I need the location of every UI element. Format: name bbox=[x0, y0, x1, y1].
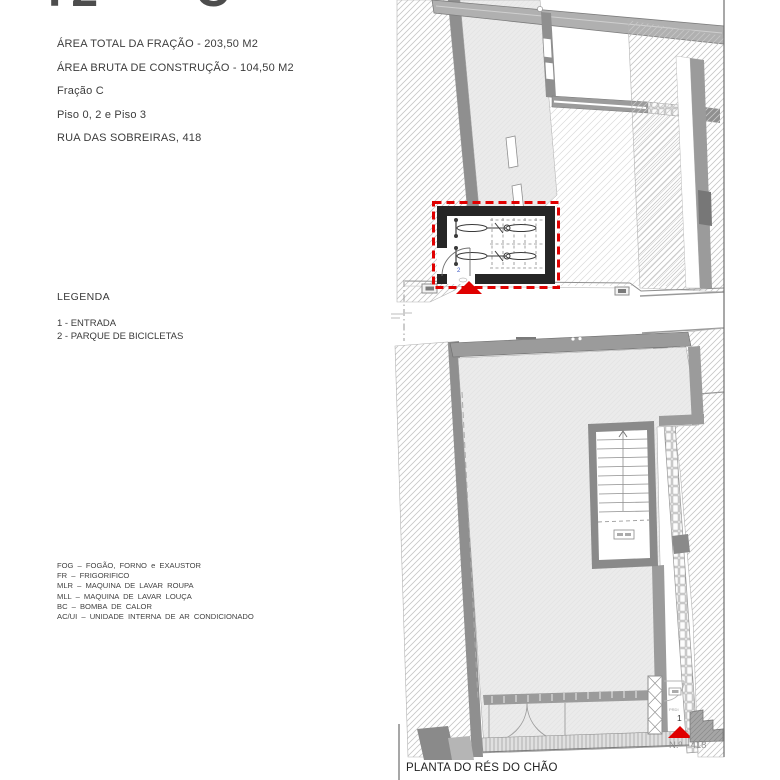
drawing-sheet: T2 C ÁREA TOTAL DA FRAÇÃO - 203,50 M2 ÁR… bbox=[0, 0, 780, 780]
street-number-label: N.º 418 bbox=[669, 740, 706, 751]
bicycle-parking-room: 2 bbox=[434, 203, 559, 295]
duct-column bbox=[648, 676, 662, 734]
marker-entrance: 1 bbox=[677, 713, 682, 723]
floor-plan-svg: 2 bbox=[0, 0, 780, 780]
lower-building: PRDI 1 bbox=[395, 328, 724, 760]
plan-title: PLANTA DO RÉS DO CHÃO bbox=[406, 762, 558, 774]
upper-right-neighbour bbox=[628, 20, 724, 333]
staircase bbox=[588, 421, 658, 569]
tiny-elevation-note bbox=[391, 313, 412, 318]
door-tag: PRDI bbox=[669, 707, 679, 712]
